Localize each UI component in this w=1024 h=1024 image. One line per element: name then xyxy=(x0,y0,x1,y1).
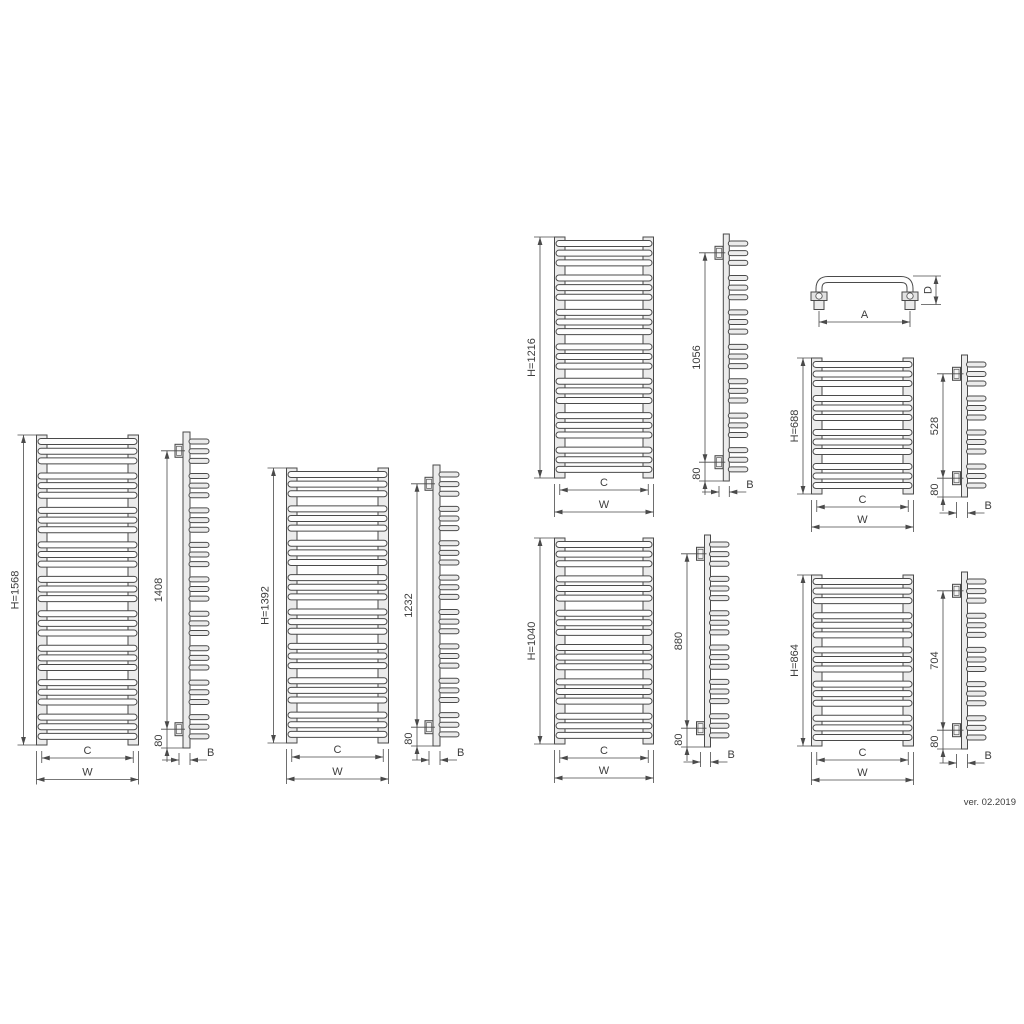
tube-side-projection xyxy=(710,596,730,601)
handle-fitting-stub xyxy=(814,301,824,310)
tube-side-projection xyxy=(710,542,730,547)
tube-side-projection xyxy=(189,473,209,478)
dimension-arrow xyxy=(693,760,701,765)
bracket-span-label: 1232 xyxy=(403,593,415,617)
dimension-arrow xyxy=(801,358,806,366)
heating-tube xyxy=(38,483,137,489)
dimension-arrow xyxy=(42,756,50,761)
side-view xyxy=(715,234,748,481)
height-label: H=1392 xyxy=(260,586,272,625)
heating-tube xyxy=(556,542,652,548)
depth-dimension: B xyxy=(940,500,992,518)
dimension-arrow xyxy=(21,435,26,443)
bracket-span-label: 1408 xyxy=(153,578,165,602)
center-distance-dimension: C xyxy=(292,744,384,762)
bottom-offset-label: 80 xyxy=(929,483,941,495)
tube-side-projection xyxy=(439,732,459,737)
dimension-arrow xyxy=(415,484,420,492)
tube-side-projection xyxy=(189,562,209,567)
height-dimension: H=1568 xyxy=(10,435,41,745)
handle-detail: AD xyxy=(811,276,941,327)
tube-side-projection xyxy=(439,654,459,659)
heating-tube xyxy=(813,734,912,740)
dimension-arrow xyxy=(271,468,276,476)
dimension-arrow xyxy=(21,737,26,745)
tube-side-projection xyxy=(189,577,209,582)
tube-side-projection xyxy=(439,575,459,580)
heating-tube xyxy=(813,578,912,584)
tube-side-projection xyxy=(967,381,987,386)
dimension-arrow xyxy=(711,490,719,495)
tube-side-projection xyxy=(728,413,748,418)
tube-side-projection xyxy=(189,586,209,591)
heating-tube xyxy=(38,689,137,695)
heating-tube xyxy=(556,422,652,428)
drawing-svg: H=1568CW140880BH=1392CW123280BH=1216CW10… xyxy=(0,0,1024,1024)
center-distance-dimension: C xyxy=(817,747,909,765)
heating-tube xyxy=(813,429,912,435)
heating-tube xyxy=(556,413,652,419)
tube-side-projection xyxy=(189,621,209,626)
tube-side-projection xyxy=(439,482,459,487)
tube-side-projection xyxy=(189,646,209,651)
handle-tube-body xyxy=(819,280,910,293)
heating-tube xyxy=(813,463,912,469)
heating-tube xyxy=(288,481,387,487)
tube-side-projection xyxy=(710,611,730,616)
dimension-arrow xyxy=(711,760,719,765)
heating-tube xyxy=(813,613,912,619)
tube-side-projection xyxy=(728,241,748,246)
tube-side-projection xyxy=(710,561,730,566)
bracket-span-label: 1056 xyxy=(691,345,703,369)
depth-dimension: B xyxy=(162,747,214,765)
dimension-arrow xyxy=(538,538,543,546)
heating-tube xyxy=(38,448,137,454)
tube-side-projection xyxy=(439,610,459,615)
dimension-arrow xyxy=(375,755,383,760)
heating-tube xyxy=(813,647,912,653)
dimension-arrow xyxy=(640,756,648,761)
heating-tube xyxy=(38,620,137,626)
tube-side-projection xyxy=(710,689,730,694)
heating-tube xyxy=(813,632,912,638)
heating-tube xyxy=(556,679,652,685)
height-label: H=1040 xyxy=(526,622,538,661)
overall-width-label: W xyxy=(599,499,610,511)
dimension-arrow xyxy=(190,758,198,763)
dimension-arrow xyxy=(165,721,170,729)
tube-side-projection xyxy=(189,655,209,660)
dimension-arrow xyxy=(171,758,179,763)
tube-side-projection xyxy=(728,457,748,462)
dimension-arrow xyxy=(685,720,690,728)
tube-side-projection xyxy=(439,644,459,649)
heating-tube xyxy=(813,598,912,604)
heating-tube xyxy=(813,449,912,455)
depth-dim-label: B xyxy=(985,500,992,512)
dimension-arrow xyxy=(646,510,654,515)
tube-side-projection xyxy=(189,508,209,513)
heating-tube xyxy=(38,645,137,651)
tube-side-projection xyxy=(189,493,209,498)
handle-fitting-nut xyxy=(816,293,822,299)
bracket-span-dimension: 528 xyxy=(929,374,964,478)
dimension-arrow xyxy=(165,451,170,459)
tube-side-projection xyxy=(728,329,748,334)
dimension-arrow xyxy=(538,470,543,478)
tube-side-projection xyxy=(710,733,730,738)
tube-side-projection xyxy=(710,664,730,669)
dimension-arrow xyxy=(941,749,946,757)
dimension-arrow xyxy=(125,756,133,761)
front-view xyxy=(555,237,654,478)
bracket-span-dimension: 880 xyxy=(673,554,707,728)
dimension-arrow xyxy=(538,237,543,245)
tube-side-projection xyxy=(710,630,730,635)
tube-side-projection xyxy=(439,472,459,477)
dimension-arrow xyxy=(640,488,648,493)
dimension-arrow xyxy=(415,719,420,727)
center-dim-label: C xyxy=(859,494,867,506)
front-view xyxy=(287,468,389,743)
heating-tube xyxy=(38,561,137,567)
depth-dimension: B xyxy=(940,750,992,768)
dimension-arrow xyxy=(271,735,276,743)
tube-side-projection xyxy=(189,680,209,685)
heating-tube xyxy=(556,466,652,472)
bottom-offset-label: 80 xyxy=(673,733,685,745)
tube-side-projection xyxy=(439,713,459,718)
side-view xyxy=(175,432,209,748)
center-dim-label: C xyxy=(600,477,608,489)
tube-side-projection xyxy=(967,464,987,469)
heating-tube xyxy=(813,381,912,387)
heating-tube xyxy=(288,506,387,512)
depth-dim-label: B xyxy=(728,749,735,761)
heating-tube xyxy=(288,731,387,737)
overall-width-label: W xyxy=(599,765,610,777)
radiator-h688: H=688CW52880B xyxy=(789,355,992,532)
heating-tube xyxy=(288,697,387,703)
heating-tube xyxy=(556,353,652,359)
dimension-arrow xyxy=(555,776,563,781)
tube-side-projection xyxy=(967,735,987,740)
dimension-arrow xyxy=(287,777,295,782)
heating-tube xyxy=(556,713,652,719)
heating-tube xyxy=(288,584,387,590)
tube-side-projection xyxy=(710,679,730,684)
tube-side-projection xyxy=(189,527,209,532)
tube-side-projection xyxy=(967,579,987,584)
tube-side-projection xyxy=(728,364,748,369)
heating-tube xyxy=(556,688,652,694)
radiator-dimension-drawing: H=1568CW140880BH=1392CW123280BH=1216CW10… xyxy=(0,0,1024,1024)
tube-side-projection xyxy=(439,560,459,565)
dimension-arrow xyxy=(165,748,170,756)
tube-side-projection xyxy=(439,491,459,496)
dimension-arrow xyxy=(941,497,946,505)
bracket-span-dimension: 1232 xyxy=(403,484,435,727)
heating-tube xyxy=(556,363,652,369)
dimension-arrow xyxy=(801,738,806,746)
tube-side-projection xyxy=(728,398,748,403)
dimension-arrow xyxy=(934,297,939,305)
heating-tube xyxy=(556,241,652,247)
bottom-offset-label: 80 xyxy=(929,735,941,747)
tube-side-projection xyxy=(967,589,987,594)
heating-tube xyxy=(813,622,912,628)
tube-side-projection xyxy=(728,251,748,256)
heating-tube xyxy=(288,643,387,649)
front-view xyxy=(812,575,914,746)
heating-tube xyxy=(288,472,387,478)
heating-tube xyxy=(556,664,652,670)
tube-side-projection xyxy=(189,552,209,557)
bracket-span-dimension: 1408 xyxy=(153,451,185,729)
tube-side-projection xyxy=(189,690,209,695)
overall-width-label: W xyxy=(82,767,93,779)
tube-side-projection xyxy=(189,665,209,670)
heating-tube xyxy=(556,551,652,557)
heating-tube xyxy=(38,596,137,602)
heating-tube xyxy=(288,609,387,615)
tube-side-projection xyxy=(728,295,748,300)
tube-side-projection xyxy=(439,541,459,546)
heating-tube xyxy=(288,712,387,718)
radiator-h864: H=864CW70480B xyxy=(789,572,992,785)
handle-fitting-nut xyxy=(907,293,913,299)
heating-tube xyxy=(556,319,652,325)
heating-tube xyxy=(38,724,137,730)
heating-tube xyxy=(813,588,912,594)
dimension-arrow xyxy=(292,755,300,760)
heating-tube xyxy=(556,629,652,635)
heating-tube xyxy=(288,678,387,684)
tube-side-projection xyxy=(439,688,459,693)
tube-side-projection xyxy=(967,632,987,637)
heating-tube xyxy=(38,665,137,671)
dimension-arrow xyxy=(560,488,568,493)
heating-tube xyxy=(556,457,652,463)
tube-side-projection xyxy=(967,691,987,696)
heating-tube xyxy=(38,714,137,720)
tube-side-projection xyxy=(710,552,730,557)
front-view xyxy=(37,435,139,745)
dimension-arrow xyxy=(538,736,543,744)
dimension-arrow xyxy=(949,761,957,766)
center-dim-label: C xyxy=(334,744,342,756)
radiator-h1392: H=1392CW123280B xyxy=(260,465,465,784)
heating-tube xyxy=(288,653,387,659)
heating-tube xyxy=(556,698,652,704)
tube-side-projection xyxy=(728,388,748,393)
heating-tube xyxy=(288,516,387,522)
height-dimension: H=1216 xyxy=(526,237,559,478)
tube-side-projection xyxy=(439,722,459,727)
tube-side-projection xyxy=(439,678,459,683)
dimension-arrow xyxy=(685,554,690,562)
tube-side-projection xyxy=(967,667,987,672)
dimension-arrow xyxy=(555,510,563,515)
tube-side-projection xyxy=(710,576,730,581)
dimension-arrow xyxy=(440,758,448,763)
dimension-arrow xyxy=(941,374,946,382)
height-label: H=1216 xyxy=(526,338,538,377)
heating-tube xyxy=(813,415,912,421)
heating-tube xyxy=(38,733,137,739)
heating-tube xyxy=(556,576,652,582)
tube-side-projection xyxy=(728,260,748,265)
heating-tube xyxy=(38,630,137,636)
depth-dim-label: B xyxy=(985,750,992,762)
bracket-span-dimension: 704 xyxy=(929,591,964,730)
tube-side-projection xyxy=(710,699,730,704)
heating-tube xyxy=(813,473,912,479)
tube-side-projection xyxy=(189,699,209,704)
radiator-h1216: H=1216CW105680B xyxy=(526,234,754,517)
heating-tube xyxy=(813,439,912,445)
dimension-arrow xyxy=(817,758,825,763)
dimension-arrow xyxy=(934,276,939,284)
dimension-arrow xyxy=(906,525,914,530)
center-dim-label: C xyxy=(600,745,608,757)
heating-tube xyxy=(288,525,387,531)
tube-side-projection xyxy=(967,623,987,628)
tube-side-projection xyxy=(967,449,987,454)
heating-tube xyxy=(288,619,387,625)
tube-side-projection xyxy=(728,467,748,472)
tube-side-projection xyxy=(728,448,748,453)
dimension-arrow xyxy=(131,777,139,782)
side-view xyxy=(953,572,987,749)
heating-tube xyxy=(556,378,652,384)
tube-side-projection xyxy=(967,473,987,478)
tube-side-projection xyxy=(439,594,459,599)
heating-tube xyxy=(288,687,387,693)
heating-tube xyxy=(556,732,652,738)
heating-tube xyxy=(38,680,137,686)
tube-side-projection xyxy=(967,716,987,721)
heating-tube xyxy=(38,527,137,533)
tube-side-projection xyxy=(967,701,987,706)
tube-side-projection xyxy=(189,542,209,547)
heating-tube xyxy=(38,439,137,445)
dimension-arrow xyxy=(560,756,568,761)
tube-side-projection xyxy=(728,379,748,384)
tube-side-projection xyxy=(439,526,459,531)
dimension-arrow xyxy=(646,776,654,781)
heating-tube xyxy=(288,491,387,497)
center-distance-dimension: C xyxy=(560,745,649,763)
tube-side-projection xyxy=(189,458,209,463)
dimension-arrow xyxy=(703,253,708,261)
depth-dim-label: B xyxy=(207,747,214,759)
heating-tube xyxy=(813,666,912,672)
handle-width-dimension: A xyxy=(819,309,910,327)
depth-dim-label: B xyxy=(457,747,464,759)
dimension-arrow xyxy=(801,575,806,583)
heating-tube xyxy=(38,473,137,479)
heating-tube xyxy=(556,610,652,616)
dimension-arrow xyxy=(685,747,690,755)
handle-fitting-stub xyxy=(905,301,915,310)
tube-side-projection xyxy=(728,310,748,315)
heating-tube xyxy=(556,260,652,266)
tube-side-projection xyxy=(439,506,459,511)
heating-tube xyxy=(556,585,652,591)
heating-tube xyxy=(38,576,137,582)
overall-width-label: W xyxy=(857,514,868,526)
side-view xyxy=(425,465,459,746)
heating-tube xyxy=(813,681,912,687)
tube-side-projection xyxy=(439,585,459,590)
dimension-arrow xyxy=(703,454,708,462)
tube-side-projection xyxy=(967,362,987,367)
heating-tube xyxy=(38,542,137,548)
tube-side-projection xyxy=(710,620,730,625)
heating-tube xyxy=(556,329,652,335)
heating-tube xyxy=(556,432,652,438)
tube-side-projection xyxy=(728,423,748,428)
heating-tube xyxy=(38,552,137,558)
heating-tube xyxy=(556,309,652,315)
heating-tube xyxy=(813,725,912,731)
dimension-arrow xyxy=(941,470,946,478)
tube-side-projection xyxy=(189,611,209,616)
heating-tube xyxy=(556,275,652,281)
heating-tube xyxy=(38,586,137,592)
dimension-arrow xyxy=(812,525,820,530)
height-label: H=1568 xyxy=(10,571,22,610)
heating-tube xyxy=(556,645,652,651)
heating-tube xyxy=(288,550,387,556)
heating-tube xyxy=(813,405,912,411)
tube-side-projection xyxy=(710,586,730,591)
depth-dimension: B xyxy=(412,747,464,765)
overall-width-label: W xyxy=(857,767,868,779)
bracket-span-label: 704 xyxy=(929,651,941,669)
tube-side-projection xyxy=(967,647,987,652)
tube-side-projection xyxy=(728,432,748,437)
tube-side-projection xyxy=(728,344,748,349)
heating-tube xyxy=(38,699,137,705)
center-distance-dimension: C xyxy=(42,745,134,763)
heating-tube xyxy=(38,517,137,523)
center-dim-label: C xyxy=(859,747,867,759)
dimension-arrow xyxy=(801,486,806,494)
dimension-arrow xyxy=(37,777,45,782)
tube-side-projection xyxy=(728,354,748,359)
height-label: H=688 xyxy=(789,410,801,443)
heating-tube xyxy=(556,388,652,394)
heating-tube xyxy=(288,560,387,566)
dimension-arrow xyxy=(415,746,420,754)
tube-side-projection xyxy=(439,516,459,521)
tube-side-projection xyxy=(439,698,459,703)
dimension-arrow xyxy=(812,778,820,783)
tube-side-projection xyxy=(967,405,987,410)
dimension-arrow xyxy=(421,758,429,763)
heating-tube xyxy=(556,344,652,350)
tube-side-projection xyxy=(189,631,209,636)
depth-dimension: B xyxy=(684,749,735,767)
heating-tube xyxy=(38,492,137,498)
dimension-arrow xyxy=(968,511,976,516)
dimension-arrow xyxy=(968,761,976,766)
handle-depth-label: D xyxy=(923,286,935,294)
tube-side-projection xyxy=(439,629,459,634)
